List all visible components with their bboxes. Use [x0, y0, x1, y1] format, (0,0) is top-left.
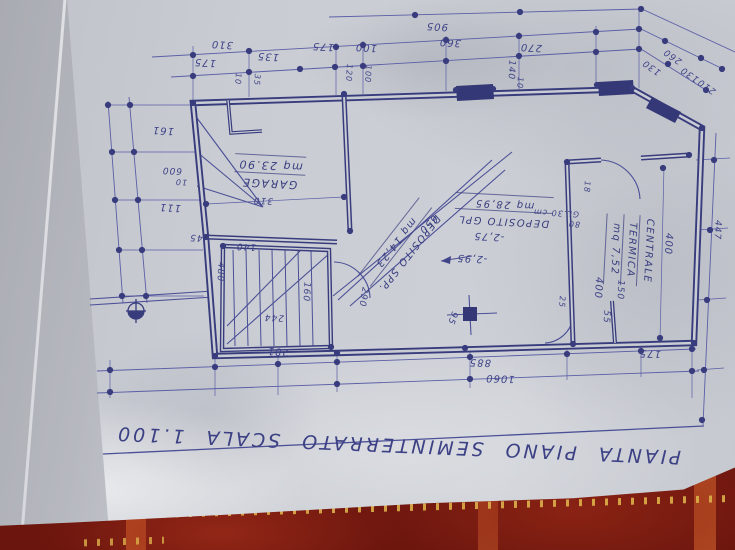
dimension-label: 95	[445, 310, 459, 326]
photo-of-floor-plan: PIANTA PIANO SEMINTERRATO SCALA 1.100 90…	[0, 0, 735, 550]
dimension-label: 10	[175, 177, 188, 187]
dimension-label: 360	[439, 36, 462, 48]
dimension-label: 130	[641, 57, 663, 77]
dimension-label: 480	[214, 262, 225, 283]
room-label: CENTRALETERMICAmq 7,52	[603, 213, 656, 286]
dimension-label: 885	[469, 356, 491, 368]
room-label-line: mq 23.90	[235, 153, 307, 175]
dimension-label: 111	[159, 201, 182, 213]
dimension-label: 10	[515, 77, 525, 90]
dimension-label: 244	[264, 311, 285, 322]
annotation-layer: PIANTA PIANO SEMINTERRATO SCALA 1.100 90…	[0, 0, 735, 550]
dimension-label: -2,95	[456, 252, 487, 265]
dimension-label: 140	[236, 240, 257, 251]
dimension-label: 270	[520, 41, 543, 53]
dimension-label: 210	[696, 76, 718, 96]
plan-title: PIANTA PIANO SEMINTERRATO SCALA 1.100	[115, 422, 682, 468]
dimension-label: 260	[662, 46, 684, 66]
dimension-label: 310	[211, 38, 234, 50]
dimension-label: 10	[233, 73, 243, 86]
room-label-line: GARAGE	[234, 171, 306, 193]
dimension-label: 55	[601, 310, 612, 324]
dimension-label: 281	[267, 345, 290, 357]
dimension-label: 25	[557, 296, 567, 309]
dimension-label: 310	[253, 194, 274, 205]
dimension-label: 905	[426, 20, 449, 32]
dimension-label: 447	[711, 220, 722, 241]
dimension-label: 600	[162, 164, 183, 175]
dimension-label: 135	[257, 50, 280, 62]
dimension-label: 1060	[485, 372, 515, 384]
dimension-label: 100	[355, 41, 378, 53]
dimension-label: 35	[252, 74, 262, 87]
paper-sheet: PIANTA PIANO SEMINTERRATO SCALA 1.100 90…	[0, 0, 735, 550]
dimension-label: 175	[194, 56, 217, 68]
room-label: DEPOSITO SPP.mq 14,23	[357, 197, 445, 296]
dimension-label: 175	[639, 347, 661, 359]
room-label: DEPOSITO GPLmq 28,95	[454, 192, 553, 230]
dimension-label: 120	[344, 64, 354, 83]
fabric-stitch-row	[84, 537, 164, 547]
dimension-label: 45	[189, 232, 203, 243]
dimension-label: 160	[300, 282, 311, 303]
room-label: GARAGEmq 23.90	[234, 153, 306, 193]
dimension-label: 100	[363, 65, 373, 84]
dimension-label: 400	[592, 277, 604, 300]
dimension-label: 175	[312, 40, 335, 52]
dimension-label: 18	[582, 181, 592, 194]
dimension-label: 400	[662, 233, 674, 256]
dimension-label: 290	[356, 286, 369, 308]
dimension-label: 161	[152, 124, 175, 136]
dimension-label: -2,75	[473, 230, 504, 243]
dimension-label: 80	[568, 219, 581, 229]
